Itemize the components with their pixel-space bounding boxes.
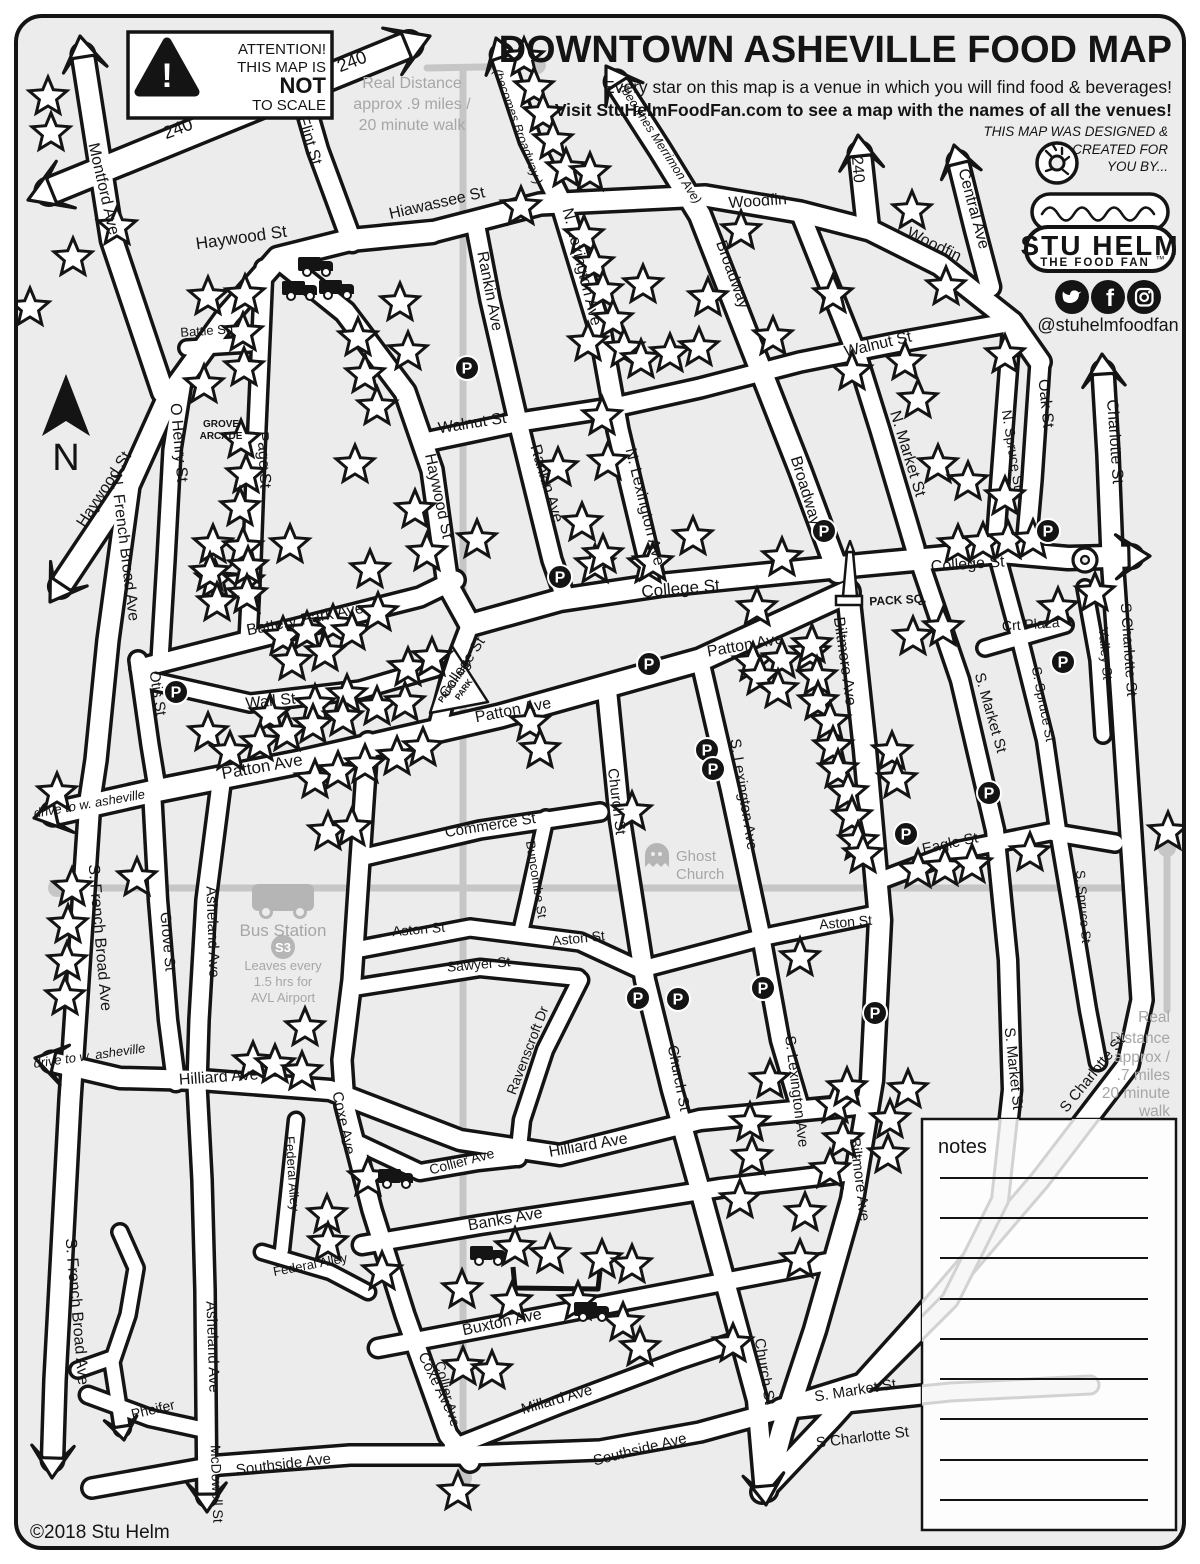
label-bus-shuttle: S3 bbox=[275, 940, 291, 955]
notes-label: notes bbox=[938, 1136, 987, 1158]
parking-icon-letter: P bbox=[462, 361, 473, 378]
label-title: DOWNTOWN ASHEVILLE FOOD MAP bbox=[499, 29, 1172, 71]
label-real-distance-top-3: 20 minute walk bbox=[359, 117, 467, 134]
bus-wheel bbox=[295, 907, 306, 918]
label-real-distance-right-5: 20 minute bbox=[1102, 1085, 1170, 1102]
label-bus-station: Bus Station bbox=[240, 921, 327, 940]
parking-icon-letter: P bbox=[758, 981, 769, 998]
food-truck-wheel bbox=[303, 268, 311, 276]
parking-icon-letter: P bbox=[673, 992, 684, 1009]
food-truck-wheel bbox=[579, 1313, 587, 1321]
map-page: DOWNTOWN ASHEVILLE FOOD MAP !fnotesPPPPP… bbox=[0, 0, 1200, 1564]
label-logo-tagline: THE FOOD FAN bbox=[1040, 257, 1150, 269]
parking-icon-letter: P bbox=[1043, 524, 1054, 541]
parking-icon-letter: P bbox=[819, 524, 830, 541]
label-social-handle: @stuhelmfoodfan bbox=[1037, 315, 1178, 335]
label-mcdowell-st: McDowell St bbox=[208, 1445, 227, 1523]
label-real-distance-top-2: approx .9 miles / bbox=[353, 96, 471, 113]
label-grove-arcade-2: ARCADE bbox=[200, 431, 243, 442]
label-logo-tm: ™ bbox=[1156, 254, 1165, 264]
parking-icon-letter: P bbox=[870, 1006, 881, 1023]
warning-exclamation: ! bbox=[161, 57, 172, 95]
label-240: 240 bbox=[848, 156, 867, 184]
ghost-icon-eye bbox=[658, 852, 662, 856]
label-grove-arcade-1: GROVE bbox=[203, 419, 239, 430]
label-asheland-ave: Asheland Ave bbox=[202, 1301, 222, 1393]
label-bus-detail-3: AVL Airport bbox=[251, 990, 316, 1005]
bus-wheel bbox=[261, 907, 272, 918]
label-credit-2: CREATED FOR bbox=[1072, 142, 1168, 157]
food-truck-wheel bbox=[475, 1257, 483, 1265]
label-real-distance-right-4: .7 miles bbox=[1117, 1067, 1171, 1084]
food-truck-wheel bbox=[287, 292, 295, 300]
asheville-food-map: !fnotesPPPPPPPPPPPPPPPDOWNTOWN ASHEVILLE… bbox=[0, 0, 1200, 1564]
label-attention-4: TO SCALE bbox=[252, 97, 326, 114]
food-truck-wheel bbox=[322, 268, 330, 276]
label-attention-1: ATTENTION! bbox=[238, 41, 326, 58]
parking-icon-letter: P bbox=[171, 685, 182, 702]
label-subtitle-1: Every star on this map is a venue in whi… bbox=[603, 77, 1172, 97]
pack-square-monument-base bbox=[836, 596, 862, 605]
label-bus-detail-1: Leaves every bbox=[244, 958, 322, 973]
food-truck-wheel bbox=[324, 291, 332, 299]
label-real-distance-right-1: Real bbox=[1138, 1009, 1170, 1026]
label-attention-3: NOT bbox=[280, 73, 327, 98]
food-truck-wheel bbox=[402, 1180, 410, 1188]
label-ghost-church-1: Ghost bbox=[676, 848, 717, 865]
facebook-icon-glyph: f bbox=[1106, 285, 1115, 312]
food-truck-wheel bbox=[343, 291, 351, 299]
label-ghost-church-2: Church bbox=[676, 866, 724, 883]
label-real-distance-right-3: approx / bbox=[1114, 1049, 1171, 1066]
parking-icon-letter: P bbox=[555, 570, 566, 587]
parking-icon-letter: P bbox=[901, 827, 912, 844]
parking-icon-letter: P bbox=[1058, 655, 1069, 672]
parking-icon-letter: P bbox=[708, 762, 719, 779]
parking-icon-letter: P bbox=[633, 991, 644, 1008]
label-compass-n: N bbox=[52, 437, 79, 479]
label-pack-sq: PACK SQ. bbox=[869, 592, 927, 609]
instagram-icon-dot bbox=[1148, 291, 1151, 294]
label-page-st: Page St bbox=[254, 431, 274, 489]
food-truck-wheel bbox=[306, 292, 314, 300]
label-bus-detail-2: 1.5 hrs for bbox=[254, 974, 313, 989]
parking-icon-letter: P bbox=[644, 657, 655, 674]
label-real-distance-top-1: Real Distance bbox=[362, 75, 462, 92]
label-credit-3: YOU BY... bbox=[1107, 159, 1168, 174]
label-copyright: ©2018 Stu Helm bbox=[30, 1522, 170, 1543]
food-truck-wheel bbox=[383, 1180, 391, 1188]
label-credit-1: THIS MAP WAS DESIGNED & bbox=[983, 124, 1168, 139]
label-asheland-ave: Asheland Ave bbox=[202, 886, 222, 978]
hotdog-icon bbox=[1032, 194, 1168, 230]
food-truck-wheel bbox=[494, 1257, 502, 1265]
ghost-icon-eye bbox=[651, 852, 655, 856]
parking-icon-letter: P bbox=[984, 786, 995, 803]
label-real-distance-right-6: walk bbox=[1138, 1103, 1170, 1120]
roundabout-island bbox=[1081, 556, 1089, 564]
instagram-icon bbox=[1127, 280, 1161, 314]
food-truck-wheel bbox=[598, 1313, 606, 1321]
